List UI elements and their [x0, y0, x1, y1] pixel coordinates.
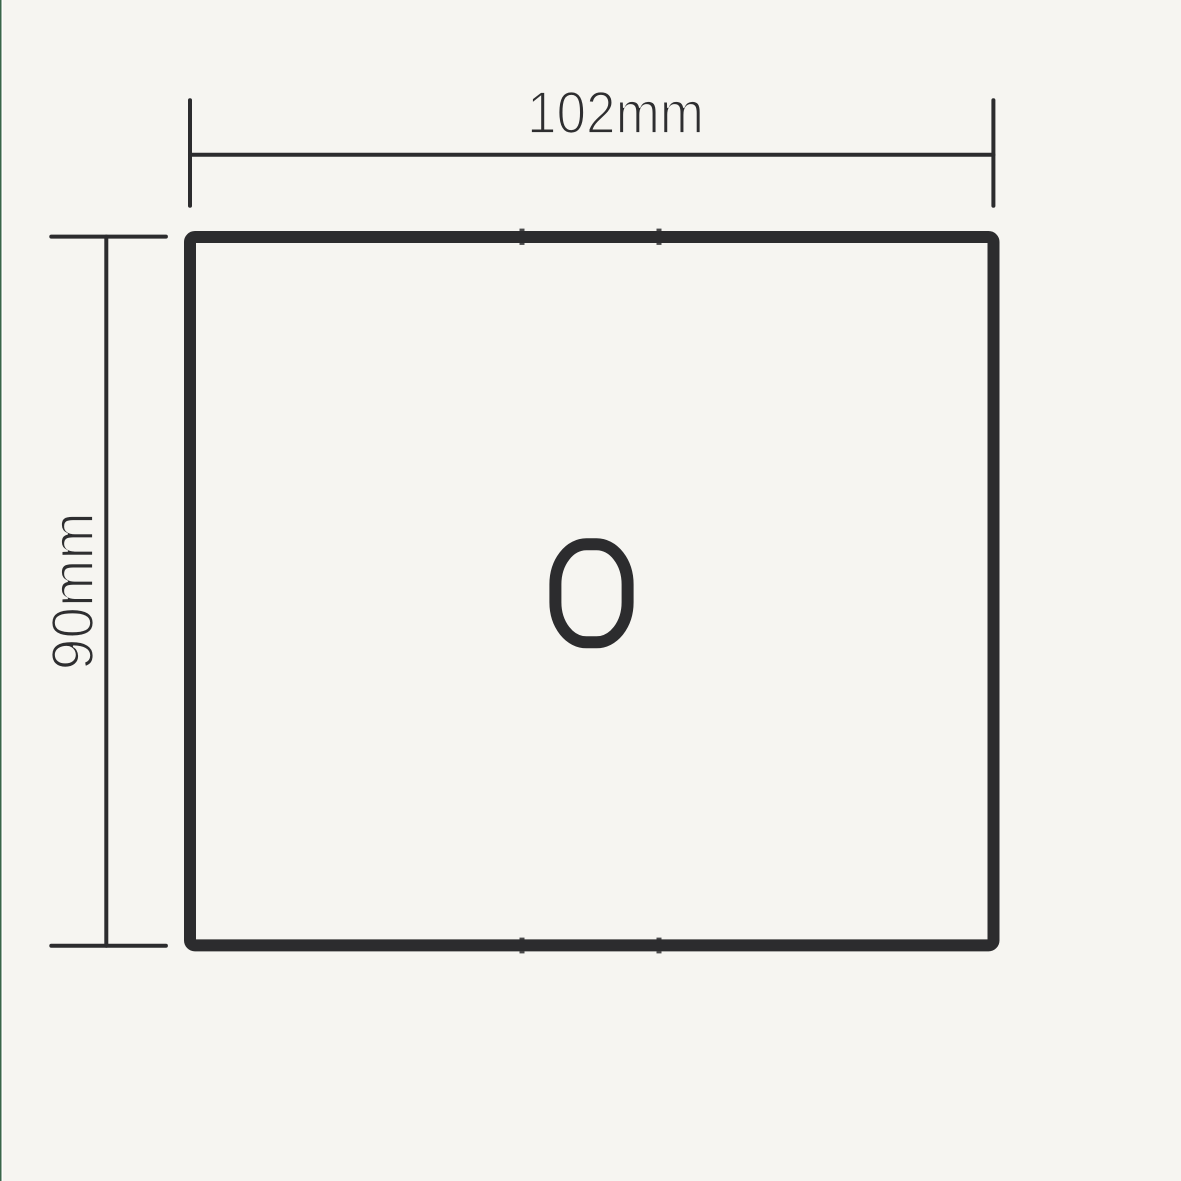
svg-text:90mm: 90mm: [40, 512, 106, 670]
svg-text:102mm: 102mm: [527, 80, 704, 146]
